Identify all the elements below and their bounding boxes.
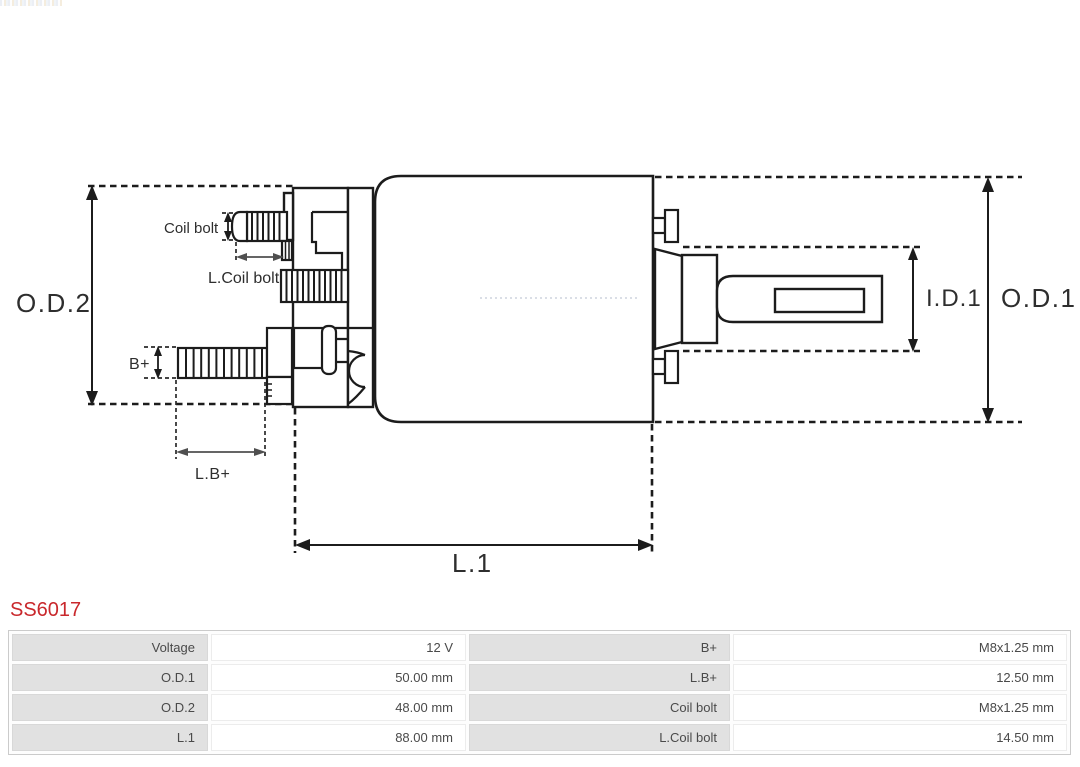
solenoid-body bbox=[375, 176, 653, 422]
spec-table: Voltage 12 V B+ M8x1.25 mm O.D.1 50.00 m… bbox=[8, 630, 1071, 755]
spec-value-b-plus: M8x1.25 mm bbox=[733, 634, 1067, 661]
dim-label-od1: O.D.1 bbox=[1001, 283, 1076, 313]
spec-label-od2: O.D.2 bbox=[12, 694, 208, 721]
spec-value-od2: 48.00 mm bbox=[211, 694, 466, 721]
spec-value-lb-plus: 12.50 mm bbox=[733, 664, 1067, 691]
threaded-bushing bbox=[281, 270, 348, 302]
solenoid-technical-drawing: O.D.2 O.D.1 I.D.1 L.1 L.B+ B+ bbox=[0, 0, 1080, 592]
dimension-id1: I.D.1 bbox=[908, 247, 982, 352]
spec-value-voltage: 12 V bbox=[211, 634, 466, 661]
spec-value-l1: 88.00 mm bbox=[211, 724, 466, 751]
spec-value-od1: 50.00 mm bbox=[211, 664, 466, 691]
dim-label-id1: I.D.1 bbox=[926, 285, 982, 312]
product-code: SS6017 bbox=[10, 598, 81, 622]
dimension-lb-plus: L.B+ bbox=[176, 448, 266, 483]
dimension-od2: O.D.2 bbox=[16, 185, 98, 406]
dimension-od1: O.D.1 bbox=[982, 177, 1076, 423]
dimension-l-coil-bolt: L.Coil bolt bbox=[208, 253, 284, 287]
spec-label-lb-plus: L.B+ bbox=[469, 664, 730, 691]
spec-label-voltage: Voltage bbox=[12, 634, 208, 661]
spec-label-l-coil-bolt: L.Coil bolt bbox=[469, 724, 730, 751]
spec-row: O.D.1 50.00 mm L.B+ 12.50 mm bbox=[12, 664, 1067, 691]
dim-label-l-coil-bolt: L.Coil bolt bbox=[208, 270, 280, 287]
spec-label-l1: L.1 bbox=[12, 724, 208, 751]
spec-value-coil-bolt: M8x1.25 mm bbox=[733, 694, 1067, 721]
dim-label-lb-plus: L.B+ bbox=[195, 466, 230, 483]
spec-value-l-coil-bolt: 14.50 mm bbox=[733, 724, 1067, 751]
dim-label-coil-bolt: Coil bolt bbox=[164, 220, 219, 237]
spec-label-od1: O.D.1 bbox=[12, 664, 208, 691]
dimension-coil-bolt: Coil bolt bbox=[164, 212, 232, 241]
spec-label-coil-bolt: Coil bolt bbox=[469, 694, 730, 721]
dim-label-l1: L.1 bbox=[452, 548, 493, 578]
dimension-b-plus: B+ bbox=[129, 346, 162, 379]
coil-bolt-stud bbox=[232, 212, 292, 260]
spec-row: O.D.2 48.00 mm Coil bolt M8x1.25 mm bbox=[12, 694, 1067, 721]
dimension-l1: L.1 bbox=[295, 539, 653, 578]
dashed-guides-thin bbox=[144, 213, 284, 459]
plunger-slot bbox=[775, 289, 864, 312]
dim-label-b-plus: B+ bbox=[129, 356, 150, 373]
plunger-assembly bbox=[655, 249, 882, 349]
dim-label-od2: O.D.2 bbox=[16, 288, 91, 318]
spec-label-b-plus: B+ bbox=[469, 634, 730, 661]
spec-row: Voltage 12 V B+ M8x1.25 mm bbox=[12, 634, 1067, 661]
spec-row: L.1 88.00 mm L.Coil bolt 14.50 mm bbox=[12, 724, 1067, 751]
